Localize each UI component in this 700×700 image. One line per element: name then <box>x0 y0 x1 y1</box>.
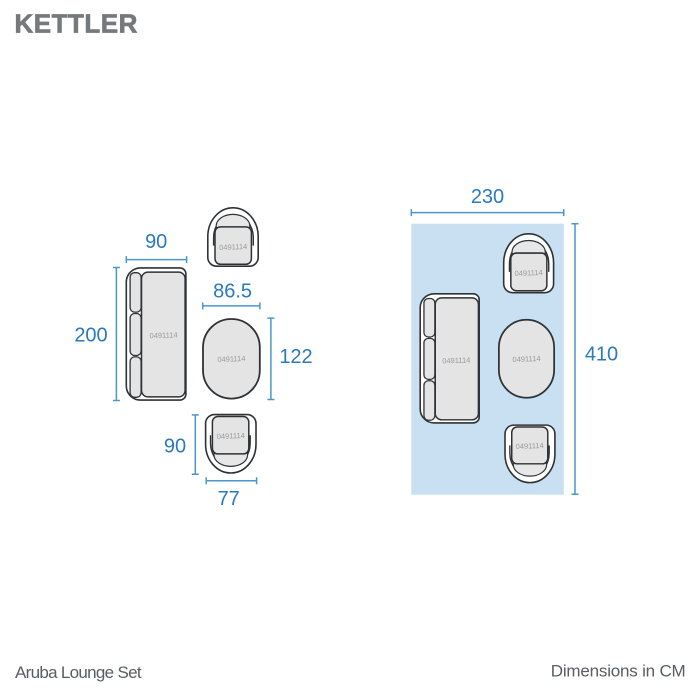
svg-text:0491114: 0491114 <box>217 431 245 441</box>
svg-text:77: 77 <box>218 488 240 510</box>
svg-text:90: 90 <box>145 231 167 253</box>
svg-text:122: 122 <box>279 346 312 368</box>
svg-text:0491114: 0491114 <box>219 242 247 252</box>
svg-text:410: 410 <box>585 344 618 366</box>
svg-text:KETTLER: KETTLER <box>15 9 138 39</box>
svg-text:230: 230 <box>471 186 504 208</box>
svg-text:86.5: 86.5 <box>213 281 252 303</box>
svg-text:0491114: 0491114 <box>512 354 540 364</box>
svg-text:200: 200 <box>74 324 107 346</box>
svg-text:90: 90 <box>164 435 186 457</box>
svg-text:0491114: 0491114 <box>149 330 177 340</box>
svg-text:Aruba Lounge Set: Aruba Lounge Set <box>15 663 142 682</box>
svg-text:0491114: 0491114 <box>442 356 470 366</box>
svg-text:0491114: 0491114 <box>514 268 542 278</box>
svg-text:0491114: 0491114 <box>516 441 544 451</box>
svg-text:0491114: 0491114 <box>217 354 245 364</box>
svg-text:Dimensions in CM: Dimensions in CM <box>551 662 686 681</box>
